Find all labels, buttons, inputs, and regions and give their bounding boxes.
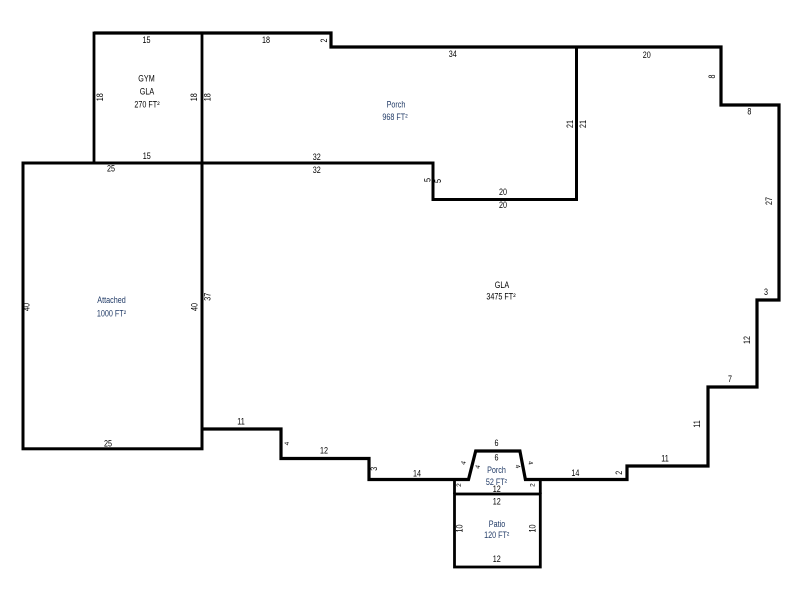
svg-text:15: 15 — [143, 35, 151, 45]
svg-text:27: 27 — [764, 197, 774, 205]
svg-text:12: 12 — [493, 554, 501, 564]
svg-text:18: 18 — [203, 93, 213, 101]
svg-text:25: 25 — [107, 164, 115, 174]
svg-text:10: 10 — [527, 525, 537, 533]
svg-text:6: 6 — [495, 453, 499, 463]
svg-text:11: 11 — [661, 454, 669, 464]
svg-text:14: 14 — [571, 468, 579, 478]
svg-text:2: 2 — [456, 483, 463, 487]
svg-text:Porch: Porch — [487, 465, 506, 475]
svg-text:1000 FT²: 1000 FT² — [97, 309, 126, 319]
svg-text:Patio: Patio — [489, 519, 505, 529]
svg-text:21: 21 — [565, 120, 575, 128]
svg-text:15: 15 — [143, 151, 151, 161]
svg-text:120 FT²: 120 FT² — [484, 530, 509, 540]
svg-text:32: 32 — [313, 152, 321, 162]
svg-text:11: 11 — [237, 417, 245, 427]
svg-text:18: 18 — [262, 35, 270, 45]
svg-text:5: 5 — [423, 178, 433, 182]
svg-text:2: 2 — [319, 39, 329, 43]
svg-text:14: 14 — [413, 469, 421, 479]
svg-text:12: 12 — [493, 484, 501, 494]
svg-text:968 FT²: 968 FT² — [382, 112, 407, 122]
svg-text:10: 10 — [454, 525, 464, 533]
svg-text:8: 8 — [707, 75, 717, 79]
svg-text:40: 40 — [190, 303, 200, 311]
svg-text:34: 34 — [449, 49, 457, 59]
svg-text:12: 12 — [320, 446, 328, 456]
svg-text:12: 12 — [742, 336, 752, 344]
svg-text:20: 20 — [499, 187, 507, 197]
svg-text:21: 21 — [578, 120, 588, 128]
svg-text:11: 11 — [692, 420, 702, 428]
svg-text:8: 8 — [747, 107, 751, 117]
svg-text:4: 4 — [284, 441, 291, 445]
svg-text:20: 20 — [499, 200, 507, 210]
svg-text:GLA: GLA — [140, 87, 154, 97]
svg-text:3: 3 — [369, 467, 379, 471]
svg-text:270 FT²: 270 FT² — [134, 100, 159, 110]
svg-text:40: 40 — [22, 303, 32, 311]
svg-text:20: 20 — [643, 50, 651, 60]
svg-text:37: 37 — [203, 293, 213, 301]
svg-text:5: 5 — [433, 179, 443, 183]
svg-text:2: 2 — [530, 483, 537, 487]
svg-text:GLA: GLA — [495, 280, 509, 290]
svg-text:18: 18 — [189, 93, 199, 101]
svg-text:Porch: Porch — [387, 100, 406, 110]
svg-text:12: 12 — [493, 497, 501, 507]
svg-text:7: 7 — [728, 374, 732, 384]
svg-text:2: 2 — [614, 471, 624, 475]
svg-text:18: 18 — [95, 93, 105, 101]
svg-text:6: 6 — [495, 438, 499, 448]
svg-text:Attached: Attached — [97, 295, 125, 305]
svg-text:GYM: GYM — [138, 74, 154, 84]
svg-text:3: 3 — [764, 287, 768, 297]
svg-text:3475 FT²: 3475 FT² — [486, 292, 515, 302]
svg-text:32: 32 — [313, 165, 321, 175]
svg-text:25: 25 — [104, 439, 112, 449]
